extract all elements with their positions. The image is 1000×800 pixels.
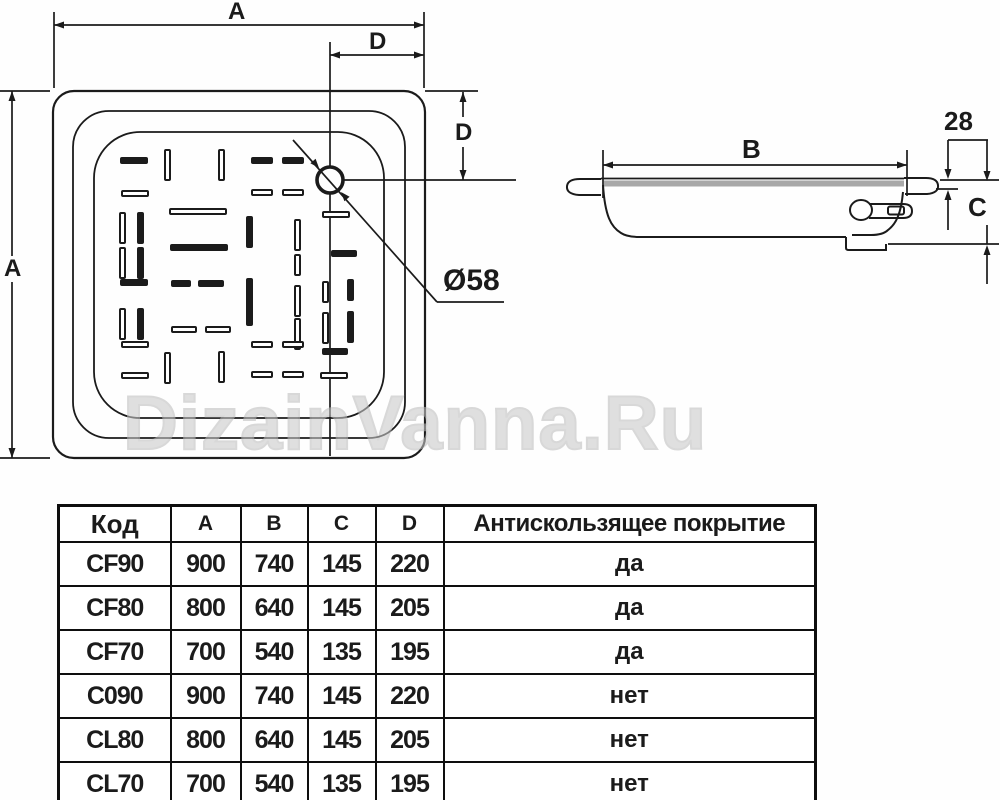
table-cell: да xyxy=(444,586,816,630)
dim-label-a-top: A xyxy=(228,0,245,24)
table-cell: 145 xyxy=(308,674,376,718)
antislip-dash xyxy=(205,326,231,333)
table-cell: 220 xyxy=(376,542,444,586)
table-cell: нет xyxy=(444,674,816,718)
antislip-dash xyxy=(169,208,227,215)
antislip-dash xyxy=(294,285,301,317)
column-header: B xyxy=(241,506,308,543)
table-cell: CF90 xyxy=(59,542,171,586)
antislip-dash xyxy=(137,212,144,244)
table-row: CF90900740145220да xyxy=(59,542,816,586)
table-row: CL70700540135195нет xyxy=(59,762,816,800)
table-cell: 640 xyxy=(241,586,308,630)
table-cell: 740 xyxy=(241,674,308,718)
table-cell: 540 xyxy=(241,762,308,800)
table-cell: да xyxy=(444,630,816,674)
dim-label-c: C xyxy=(968,194,987,220)
column-header: A xyxy=(171,506,241,543)
table-cell: CF70 xyxy=(59,630,171,674)
table-cell: 640 xyxy=(241,718,308,762)
table-row: CF80800640145205да xyxy=(59,586,816,630)
table-cell: 220 xyxy=(376,674,444,718)
antislip-dash xyxy=(119,212,126,244)
antislip-dash xyxy=(218,149,225,181)
antislip-dash xyxy=(322,281,329,303)
antislip-dash xyxy=(121,372,149,379)
antislip-dash xyxy=(121,190,149,197)
antislip-dash xyxy=(170,244,228,251)
antislip-dash xyxy=(246,278,253,326)
column-header: D xyxy=(376,506,444,543)
dim-label-a-left: A xyxy=(1,256,24,282)
dim-label-d-right: D xyxy=(452,120,475,146)
antislip-dash xyxy=(198,280,224,287)
table-cell: 135 xyxy=(308,762,376,800)
antislip-dash xyxy=(251,341,273,348)
antislip-dash xyxy=(251,371,273,378)
antislip-dash xyxy=(282,189,304,196)
table-cell: 900 xyxy=(171,674,241,718)
table-cell: CF80 xyxy=(59,586,171,630)
table-cell: CL70 xyxy=(59,762,171,800)
antislip-dash xyxy=(251,189,273,196)
dim-label-28: 28 xyxy=(944,108,973,134)
antislip-dash xyxy=(120,279,148,286)
table-row: CF70700540135195да xyxy=(59,630,816,674)
table-cell: да xyxy=(444,542,816,586)
antislip-dash xyxy=(218,351,225,383)
antislip-dash xyxy=(331,250,357,257)
antislip-dash xyxy=(119,247,126,279)
table-cell: 145 xyxy=(308,542,376,586)
antislip-dash xyxy=(347,279,354,301)
antislip-dash xyxy=(251,157,273,164)
column-header: C xyxy=(308,506,376,543)
antislip-dash xyxy=(294,219,301,251)
table-cell: нет xyxy=(444,762,816,800)
table-cell: 700 xyxy=(171,762,241,800)
antislip-dash xyxy=(282,341,304,348)
antislip-dash xyxy=(171,326,197,333)
antislip-dash xyxy=(294,254,301,276)
table-cell: 740 xyxy=(241,542,308,586)
antislip-dash xyxy=(282,371,304,378)
dimensions-table: КодABCDАнтискользящее покрытие CF9090074… xyxy=(57,504,817,800)
table-cell: нет xyxy=(444,718,816,762)
antislip-dash xyxy=(347,311,354,343)
antislip-dash xyxy=(120,157,148,164)
dim-label-b: B xyxy=(742,136,761,162)
drain-diameter-label: Ø58 xyxy=(443,266,500,296)
table-cell: 135 xyxy=(308,630,376,674)
table-cell: 700 xyxy=(171,630,241,674)
table-cell: 145 xyxy=(308,718,376,762)
antislip-dash xyxy=(282,157,304,164)
table-cell: 540 xyxy=(241,630,308,674)
column-header: Код xyxy=(59,506,171,543)
antislip-dash xyxy=(137,308,144,340)
table-row: C090900740145220нет xyxy=(59,674,816,718)
table-header-row: КодABCDАнтискользящее покрытие xyxy=(59,506,816,543)
watermark: DizainVanna.Ru xyxy=(123,380,707,467)
table-cell: 195 xyxy=(376,630,444,674)
table-cell: 145 xyxy=(308,586,376,630)
antislip-dash xyxy=(320,372,348,379)
antislip-dash xyxy=(119,308,126,340)
table-cell: CL80 xyxy=(59,718,171,762)
table-cell: 800 xyxy=(171,586,241,630)
table-cell: 800 xyxy=(171,718,241,762)
table-cell: 195 xyxy=(376,762,444,800)
antislip-dash xyxy=(322,211,350,218)
antislip-dash xyxy=(322,348,348,355)
antislip-dash xyxy=(164,149,171,181)
antislip-dash xyxy=(246,216,253,248)
antislip-dash xyxy=(137,247,144,279)
column-header: Антискользящее покрытие xyxy=(444,506,816,543)
table-row: CL80800640145205нет xyxy=(59,718,816,762)
antislip-dash xyxy=(171,280,191,287)
table-cell: C090 xyxy=(59,674,171,718)
table-cell: 205 xyxy=(376,586,444,630)
antislip-dash xyxy=(121,341,149,348)
technical-drawing-page: A D A D Ø58 B 28 C DizainVanna.Ru КодABC… xyxy=(0,0,1000,800)
table-cell: 205 xyxy=(376,718,444,762)
table-cell: 900 xyxy=(171,542,241,586)
dim-label-d-top: D xyxy=(369,30,386,54)
antislip-dash xyxy=(322,312,329,344)
